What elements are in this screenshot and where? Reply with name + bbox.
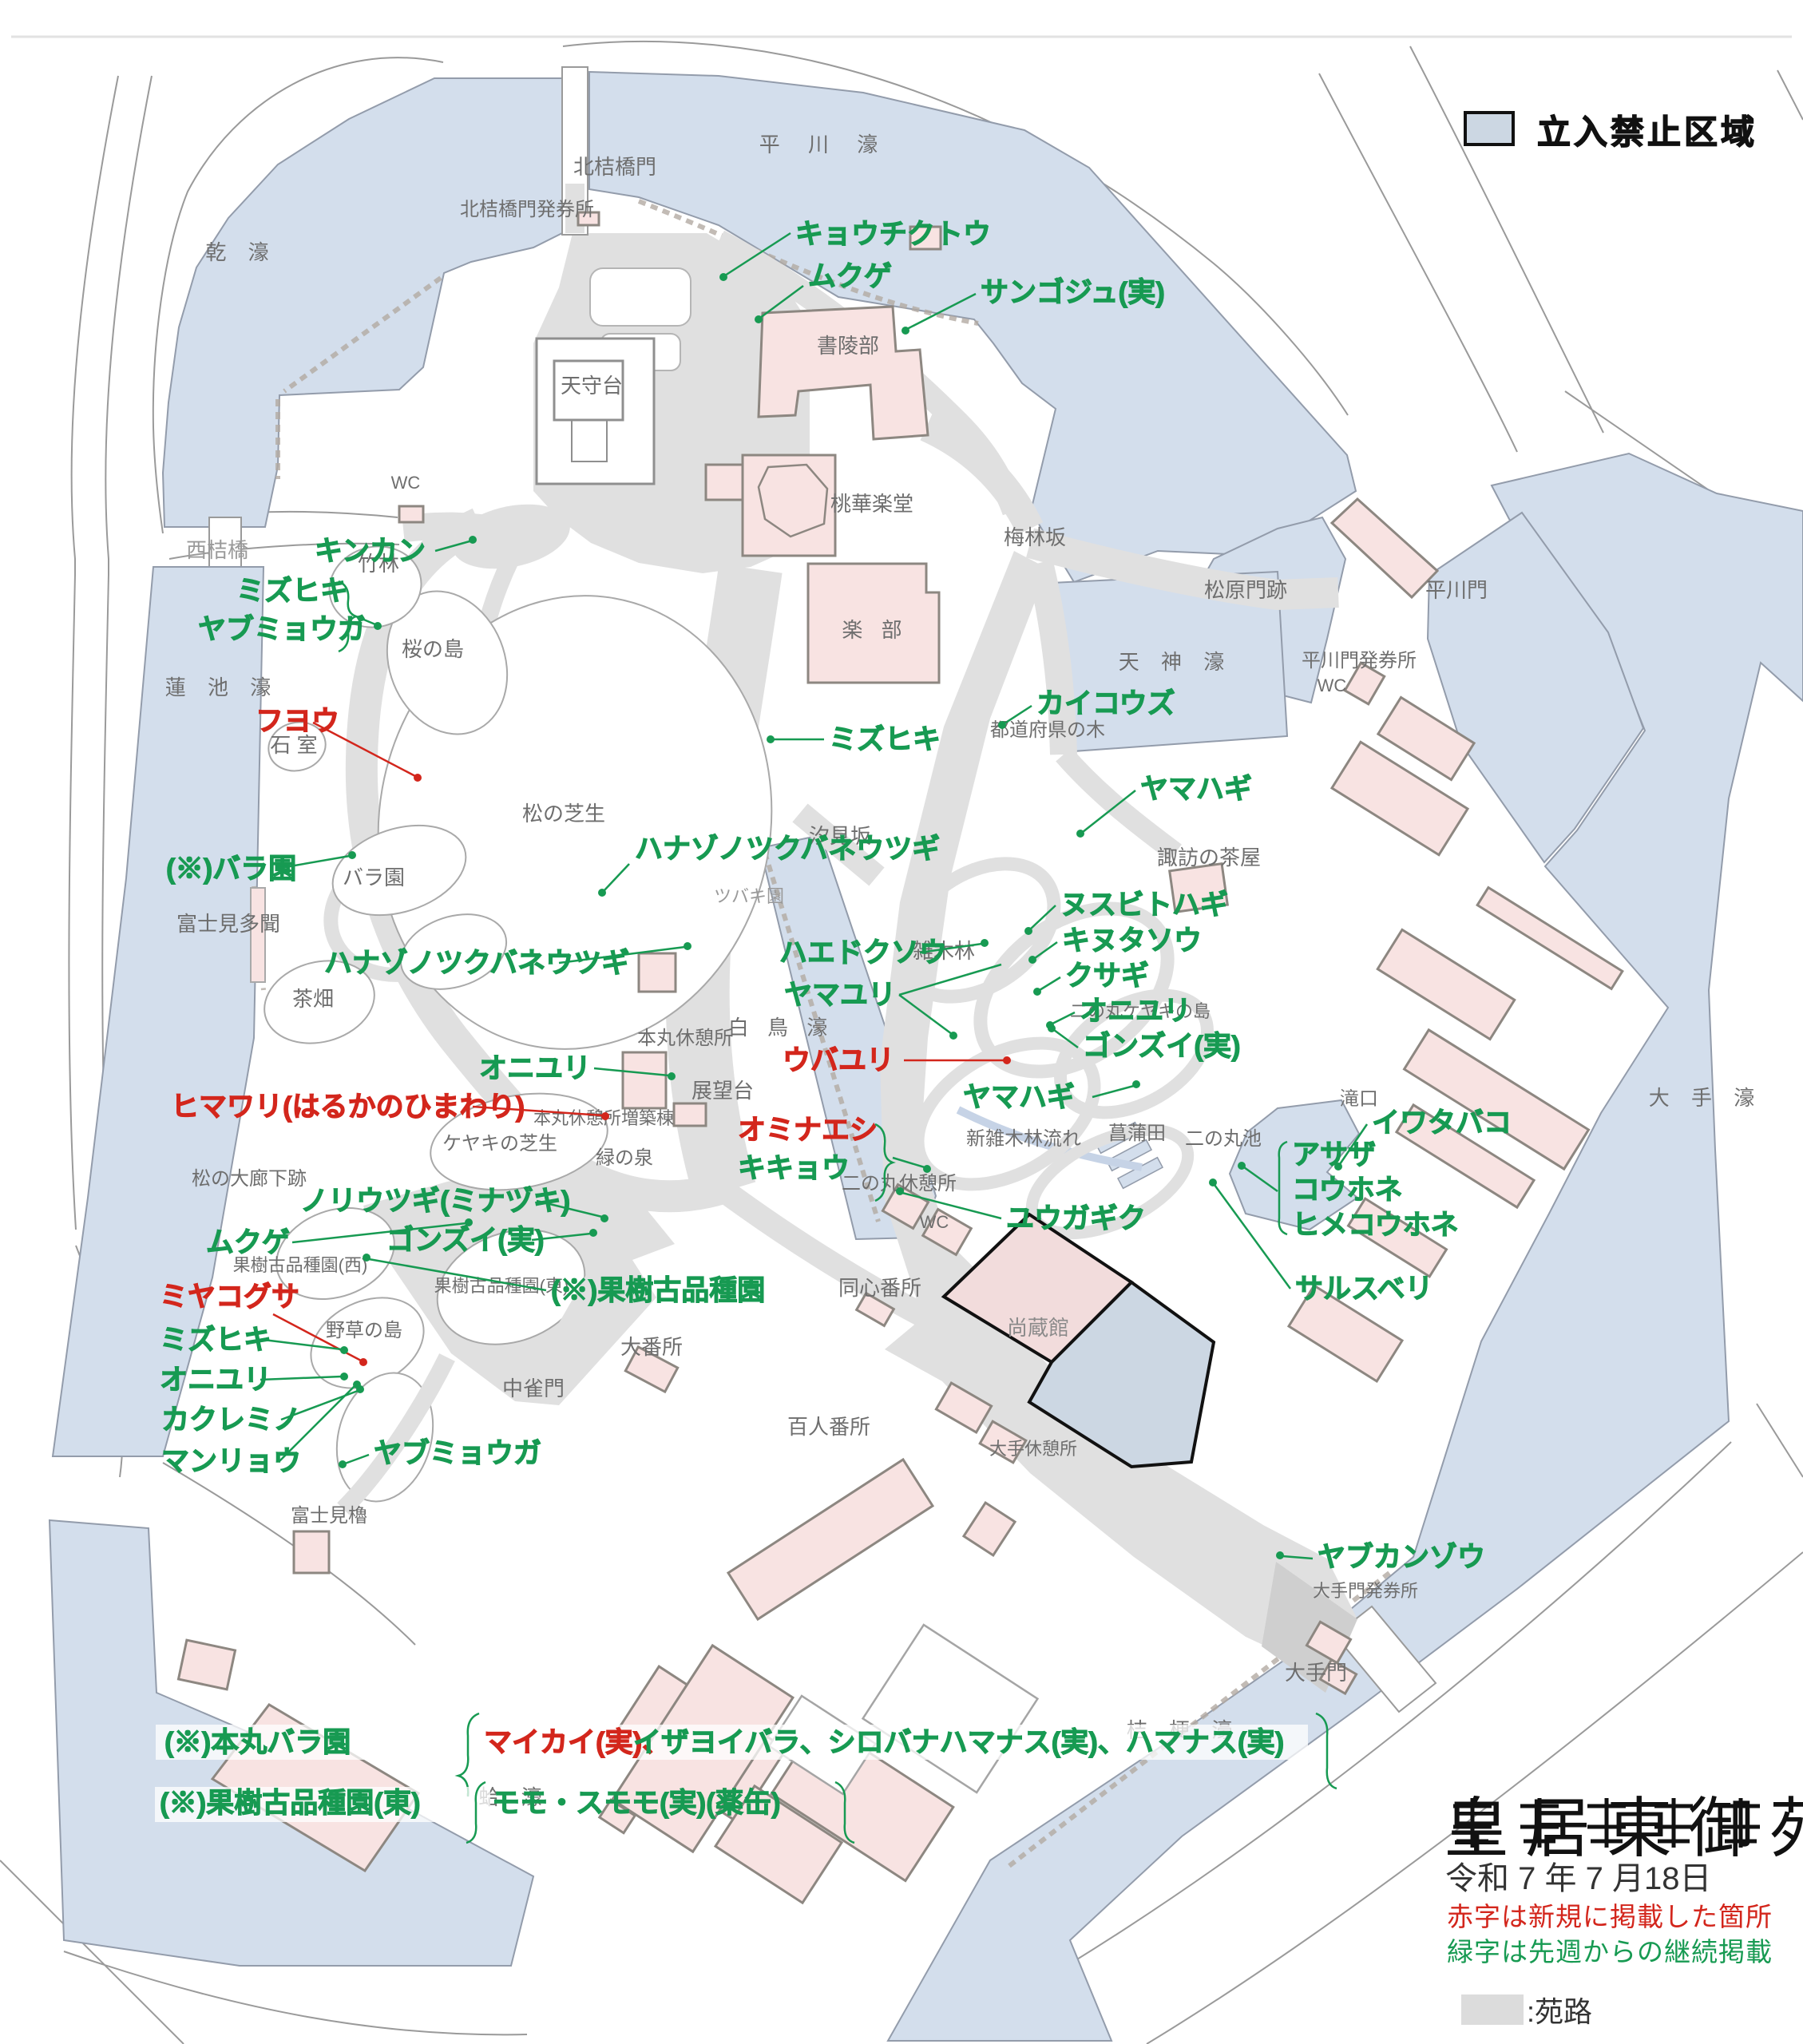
svg-text:ノリウツギ(ミナヅキ): ノリウツギ(ミナヅキ) xyxy=(300,1186,570,1217)
svg-text:松の大廊下跡: 松の大廊下跡 xyxy=(192,1168,307,1190)
svg-text:滝口: 滝口 xyxy=(1340,1088,1378,1110)
svg-text:桃華楽堂: 桃華楽堂 xyxy=(830,492,913,516)
svg-text:サンゴジュ(実): サンゴジュ(実) xyxy=(981,276,1165,308)
svg-text:ツバキ園: ツバキ園 xyxy=(714,886,784,906)
svg-text:立入禁止区域: 立入禁止区域 xyxy=(1537,113,1757,151)
svg-text:平川門発券所: 平川門発券所 xyxy=(1302,650,1417,671)
svg-text:西桔橋: 西桔橋 xyxy=(186,538,248,562)
svg-text:二の丸池: 二の丸池 xyxy=(1185,1128,1262,1150)
svg-text:天守台: 天守台 xyxy=(561,374,623,398)
svg-text:ヒメコウホネ: ヒメコウホネ xyxy=(1292,1210,1459,1241)
svg-text:WC: WC xyxy=(391,473,421,493)
svg-text:果樹古品種園(東): 果樹古品種園(東) xyxy=(434,1276,569,1296)
svg-text:ムクゲ: ムクゲ xyxy=(206,1227,290,1258)
svg-text:ハナゾノツクバネウツギ: ハナゾノツクバネウツギ xyxy=(324,948,629,979)
svg-text:キョウチクトウ: キョウチクトウ xyxy=(795,219,991,250)
svg-text:緑字は先週からの継続掲載: 緑字は先週からの継続掲載 xyxy=(1447,1937,1773,1967)
svg-text:フヨウ: フヨウ xyxy=(256,706,339,737)
svg-text:尚蔵館: 尚蔵館 xyxy=(1007,1316,1069,1340)
svg-text:ゴンズイ(実): ゴンズイ(実) xyxy=(1083,1030,1241,1062)
svg-text:中雀門: 中雀門 xyxy=(502,1377,565,1400)
svg-text:北桔橋門発券所: 北桔橋門発券所 xyxy=(460,199,594,220)
svg-text:ヤマユリ: ヤマユリ xyxy=(784,980,896,1011)
svg-text:オニユリ: オニユリ xyxy=(479,1053,591,1084)
svg-text:WC: WC xyxy=(920,1212,949,1232)
svg-text:乾 濠: 乾 濠 xyxy=(205,240,276,264)
svg-text:ミズヒキ: ミズヒキ xyxy=(160,1324,271,1356)
svg-text:オニユリ: オニユリ xyxy=(1080,996,1191,1027)
svg-text:北桔橋門: 北桔橋門 xyxy=(573,155,656,179)
svg-text:桜の島: 桜の島 xyxy=(402,637,464,661)
svg-text:ミヤコグサ: ミヤコグサ xyxy=(160,1281,299,1313)
svg-text:大手門発券所: 大手門発券所 xyxy=(1313,1581,1418,1601)
svg-text:大番所: 大番所 xyxy=(620,1335,683,1359)
svg-text:本丸休憩所: 本丸休憩所 xyxy=(637,1028,733,1049)
svg-text:イワタバコ: イワタバコ xyxy=(1372,1107,1512,1139)
svg-text:諏訪の茶屋: 諏訪の茶屋 xyxy=(1157,846,1261,869)
svg-text:松の芝生: 松の芝生 xyxy=(522,802,605,826)
svg-text:ミズヒキ: ミズヒキ xyxy=(236,575,348,607)
svg-text:サルスベリ: サルスベリ xyxy=(1295,1274,1433,1305)
svg-text:書陵部: 書陵部 xyxy=(817,334,879,358)
svg-text:カイコウズ: カイコウズ xyxy=(1036,687,1175,719)
svg-text:カクレミノ: カクレミノ xyxy=(161,1404,301,1436)
svg-text:モモ・スモモ(実)(薬缶): モモ・スモモ(実)(薬缶) xyxy=(492,1788,781,1819)
svg-text:オミナエシ: オミナエシ xyxy=(738,1115,878,1146)
svg-text:アサザ: アサザ xyxy=(1292,1139,1376,1171)
svg-text:ヒマワリ(はるかのひまわり): ヒマワリ(はるかのひまわり) xyxy=(171,1091,525,1123)
svg-text:緑の泉: 緑の泉 xyxy=(596,1147,653,1169)
svg-text:ヤブミョウガ: ヤブミョウガ xyxy=(374,1437,541,1469)
svg-text:キンカン: キンカン xyxy=(315,536,426,567)
svg-text:百人番所: 百人番所 xyxy=(787,1415,870,1439)
svg-text:大手門: 大手門 xyxy=(1285,1661,1347,1685)
svg-text:展望台: 展望台 xyxy=(691,1079,754,1103)
svg-text:同心番所: 同心番所 xyxy=(838,1276,921,1300)
svg-text:バラ園: バラ園 xyxy=(343,866,405,889)
svg-text:松原門跡: 松原門跡 xyxy=(1204,578,1287,602)
svg-text:大手休憩所: 大手休憩所 xyxy=(989,1439,1077,1459)
svg-text:富士見多聞: 富士見多聞 xyxy=(176,912,280,936)
svg-text:クサギ: クサギ xyxy=(1065,961,1149,992)
svg-text:コウホネ: コウホネ xyxy=(1292,1175,1403,1206)
svg-text:WC: WC xyxy=(1318,675,1347,695)
svg-text:蓮 池 濠: 蓮 池 濠 xyxy=(165,675,279,699)
svg-text:楽 部: 楽 部 xyxy=(842,618,908,642)
svg-text:ヤマハギ: ヤマハギ xyxy=(963,1082,1075,1113)
svg-text:野草の島: 野草の島 xyxy=(326,1320,402,1341)
svg-text:白 鳥 濠: 白 鳥 濠 xyxy=(728,1016,834,1040)
svg-text:ミズヒキ: ミズヒキ xyxy=(829,723,941,755)
svg-text:平川門: 平川門 xyxy=(1425,578,1488,602)
svg-text:ゴンズイ(実): ゴンズイ(実) xyxy=(386,1224,545,1256)
svg-text:大 手 濠: 大 手 濠 xyxy=(1649,1086,1762,1110)
svg-text:キキョウ: キキョウ xyxy=(738,1153,850,1184)
svg-text:キヌタソウ: キヌタソウ xyxy=(1062,925,1202,957)
svg-text:ハナゾノツクバネウツギ: ハナゾノツクバネウツギ xyxy=(635,834,940,865)
svg-text:ヤブカンゾウ: ヤブカンゾウ xyxy=(1318,1541,1485,1573)
svg-text:茶畑: 茶畑 xyxy=(292,987,334,1011)
svg-text:ムクゲ: ムクゲ xyxy=(808,261,892,292)
svg-text:ヤブミョウガ: ヤブミョウガ xyxy=(198,613,366,645)
svg-text:イザヨイバラ、シロバナハマナス(実)、ハマナス(実): イザヨイバラ、シロバナハマナス(実)、ハマナス(実) xyxy=(633,1727,1284,1758)
svg-text:(※)果樹古品種園: (※)果樹古品種園 xyxy=(551,1275,765,1306)
svg-text:赤字は新規に掲載した箇所: 赤字は新規に掲載した箇所 xyxy=(1447,1902,1773,1931)
svg-text:オニユリ: オニユリ xyxy=(160,1365,271,1396)
svg-text:新雑木林流れ: 新雑木林流れ xyxy=(966,1128,1081,1150)
svg-text:平 川 濠: 平 川 濠 xyxy=(759,133,889,156)
svg-text:ウバユリ: ウバユリ xyxy=(783,1045,894,1076)
svg-text:ユウガギク: ユウガギク xyxy=(1006,1203,1146,1234)
svg-text:天 神 濠: 天 神 濠 xyxy=(1119,650,1232,674)
svg-text:梅林坂: 梅林坂 xyxy=(1004,525,1066,549)
svg-text:ヌスビトハギ: ヌスビトハギ xyxy=(1060,889,1228,921)
svg-text:ヤマハギ: ヤマハギ xyxy=(1140,774,1252,805)
svg-text:令和 7 年 7 月18日: 令和 7 年 7 月18日 xyxy=(1445,1861,1711,1896)
svg-text:菖蒲田: 菖蒲田 xyxy=(1108,1123,1166,1144)
svg-text:富士見櫓: 富士見櫓 xyxy=(291,1505,367,1527)
svg-text:(※)果樹古品種園(東): (※)果樹古品種園(東) xyxy=(160,1788,421,1819)
svg-text::苑路: :苑路 xyxy=(1527,1995,1592,2028)
svg-text:(※)本丸バラ園: (※)本丸バラ園 xyxy=(164,1727,351,1758)
svg-text:ケヤキの芝生: ケヤキの芝生 xyxy=(442,1133,557,1155)
